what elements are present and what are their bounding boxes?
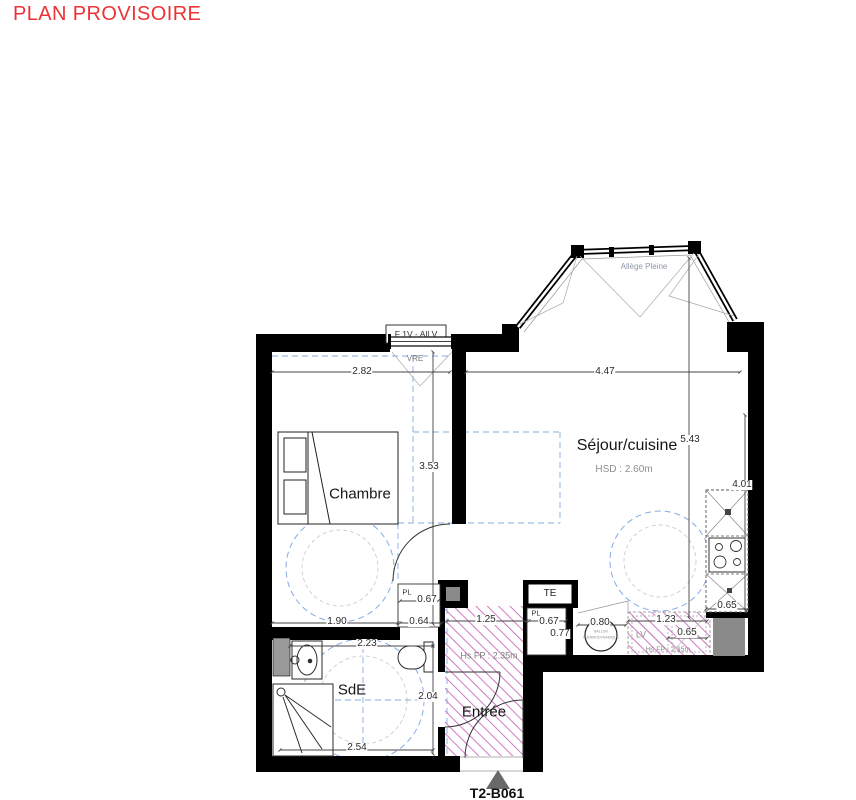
sink-symbol (725, 509, 731, 515)
room-label-entree: Entrée (462, 705, 506, 720)
floorplan-page: PLAN PROVISOIRE F 1V - All V VRE Allège … (0, 0, 856, 800)
dim-pl-right-depth: 0.77 (549, 629, 570, 639)
dim-sde-height: 2.04 (417, 692, 438, 702)
toilet (398, 642, 433, 672)
dim-ballon-width: 0.80 (589, 618, 610, 628)
dim-entree-width: 1.25 (475, 615, 496, 625)
room-label-chambre: Chambre (329, 487, 391, 502)
dim-sde-bottom: 2.54 (346, 743, 367, 753)
window-type-label: F 1V - All V (395, 330, 438, 339)
dim-lv-depth: 0.65 (676, 628, 697, 638)
unit-label: T2-B061 (470, 786, 524, 800)
bay-window (518, 241, 735, 332)
dim-pl-left-width: 0.64 (408, 617, 429, 627)
dim-sde-width: 2.23 (356, 639, 377, 649)
dim-pl-right-width: 0.67 (538, 617, 559, 627)
kitchen-counter (706, 490, 748, 612)
dim-lv-width: 1.23 (655, 615, 676, 625)
ballon-label-line2: THERMODYNAMIQUE (583, 636, 619, 640)
dim-chambre-height: 3.53 (418, 462, 439, 472)
dim-sejour-width: 4.47 (594, 367, 615, 377)
entree-ceiling-height: Hs FP : 2.35m (460, 652, 517, 661)
lv-ceiling-height: Hs FP : 2.35m (646, 647, 691, 654)
sejour-ceiling-height: HSD : 2.60m (595, 465, 652, 475)
te-label: TE (544, 589, 557, 599)
dim-sde-upper: 1.90 (326, 617, 347, 627)
bed (278, 432, 398, 524)
cooktop (709, 538, 745, 572)
room-label-sejour: Séjour/cuisine (577, 438, 678, 454)
dim-kitchen-depth: 0.65 (716, 601, 737, 611)
hatch-entree (445, 606, 527, 756)
pl-left-label: PL (402, 588, 411, 596)
allege-label: Allège Pleine (621, 263, 668, 271)
room-label-sde: SdE (338, 683, 366, 698)
washbasin (291, 641, 322, 679)
chambre-door-arc (393, 524, 450, 581)
dim-sejour-height: 5.43 (679, 435, 700, 445)
page-title: PLAN PROVISOIRE (13, 3, 201, 26)
dim-chambre-width: 2.82 (351, 367, 372, 377)
shutter-label: VRE (407, 355, 423, 363)
shower (273, 684, 333, 756)
dim-pl-left-depth: 0.67 (416, 595, 437, 605)
floorplan-drawing (0, 0, 856, 800)
dim-kitchen-length: 4.01 (731, 480, 752, 490)
ballon-label-line1: BALLON (594, 630, 608, 634)
lv-label: LV (636, 631, 646, 640)
